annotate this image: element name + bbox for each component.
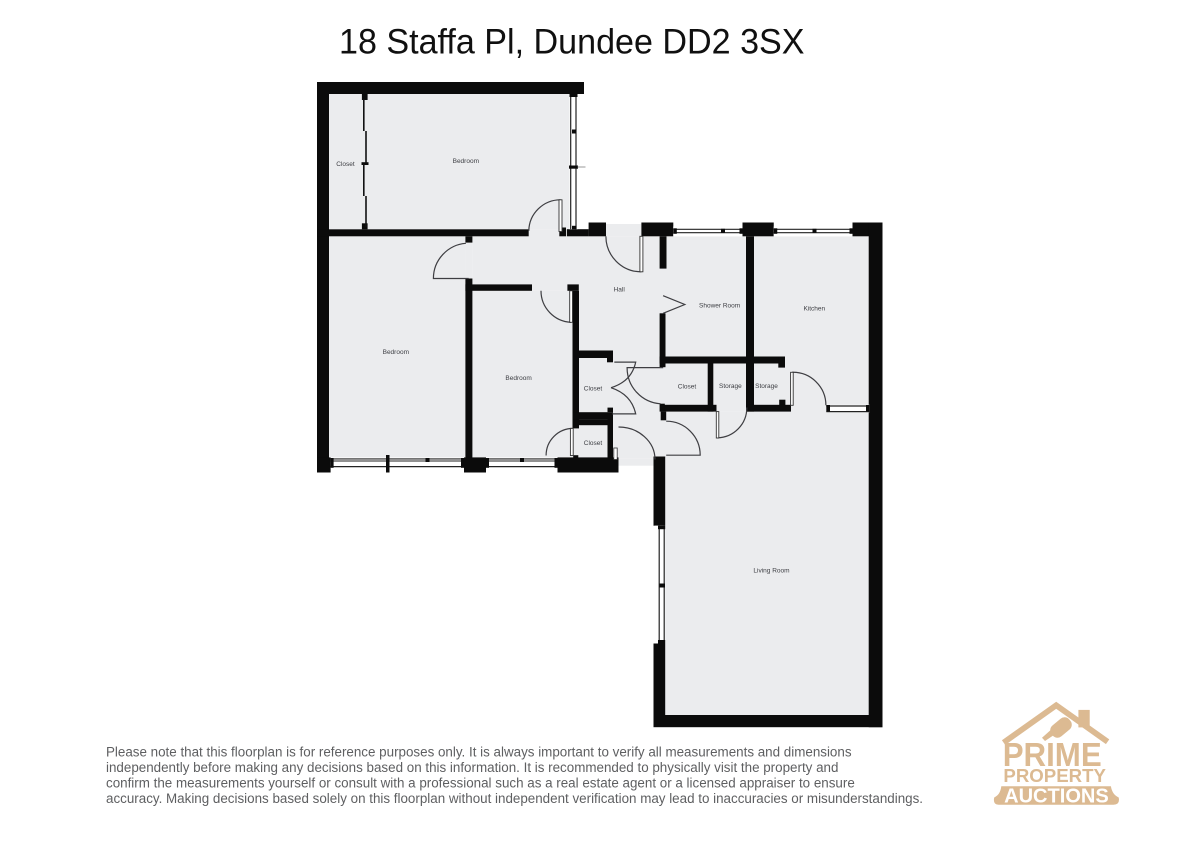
svg-text:Bedroom: Bedroom <box>383 349 409 356</box>
svg-text:Bedroom: Bedroom <box>453 158 479 165</box>
svg-text:AUCTIONS: AUCTIONS <box>1004 784 1109 807</box>
svg-text:Living Room: Living Room <box>753 568 789 575</box>
svg-text:Storage: Storage <box>755 383 778 390</box>
svg-text:Bedroom: Bedroom <box>505 375 531 382</box>
svg-text:Closet: Closet <box>584 386 603 393</box>
svg-text:Please note that this floorpla: Please note that this floorplan is for r… <box>106 745 852 760</box>
svg-text:Hall: Hall <box>614 287 626 294</box>
svg-text:confirm the measurements yours: confirm the measurements yourself or con… <box>106 776 855 791</box>
svg-text:Kitchen: Kitchen <box>803 306 825 313</box>
svg-text:independently before making an: independently before making any decision… <box>106 760 838 775</box>
svg-text:18 Staffa Pl, Dundee DD2 3SX: 18 Staffa Pl, Dundee DD2 3SX <box>339 23 805 62</box>
svg-text:Closet: Closet <box>584 440 603 447</box>
svg-text:accuracy. Making decisions bas: accuracy. Making decisions based solely … <box>106 791 923 806</box>
svg-text:Closet: Closet <box>678 384 697 391</box>
svg-text:Shower Room: Shower Room <box>699 303 740 310</box>
svg-text:PROPERTY: PROPERTY <box>1003 765 1106 786</box>
svg-text:Closet: Closet <box>336 161 355 168</box>
svg-text:Storage: Storage <box>719 383 742 390</box>
